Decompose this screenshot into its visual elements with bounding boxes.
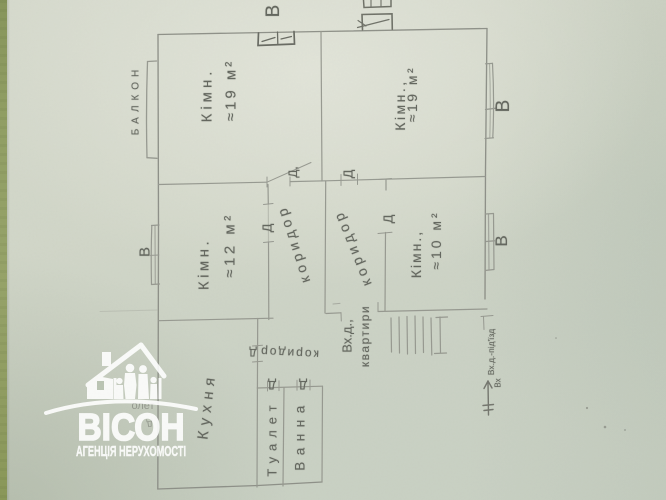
svg-text:ВІСОН: ВІСОН	[78, 407, 185, 449]
svg-text:АГЕНЦІЯ НЕРУХОМОСТІ: АГЕНЦІЯ НЕРУХОМОСТІ	[76, 444, 186, 460]
